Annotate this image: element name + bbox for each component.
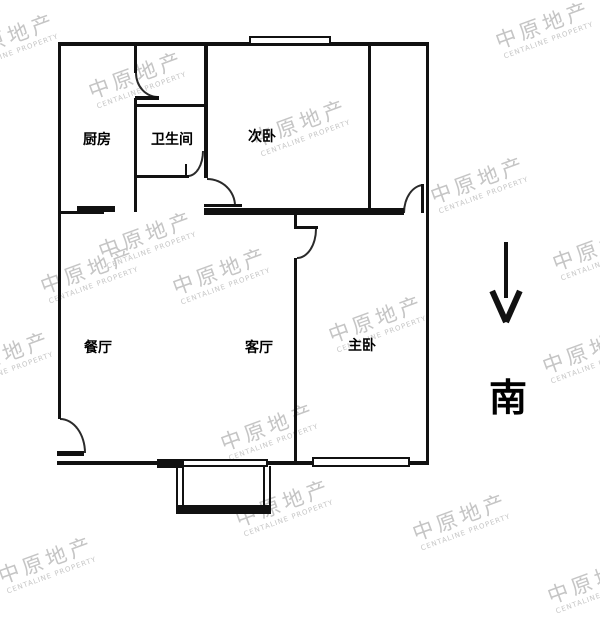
balcony-wall-right-inner	[263, 466, 265, 508]
watermark: 中原地产CENTALINE PROPERTY	[465, 0, 600, 71]
watermark-subtext: CENTALINE PROPERTY	[520, 335, 600, 396]
master-bedroom-door-leaf	[296, 226, 318, 229]
watermark-text: 中原地产	[10, 234, 168, 308]
watermark: 中原地产CENTALINE PROPERTY	[298, 283, 459, 366]
room-label-secondary-bedroom: 次卧	[248, 126, 276, 146]
bathroom-door-arc	[188, 151, 204, 177]
watermark: 中原地产CENTALINE PROPERTY	[222, 87, 383, 170]
watermark-subtext: CENTALINE PROPERTY	[150, 256, 303, 317]
watermark-text: 中原地产	[0, 1, 87, 75]
room-label-kitchen: 厨房	[83, 129, 111, 149]
watermark-subtext: CENTALINE PROPERTY	[390, 502, 543, 563]
wall-living-master	[294, 258, 297, 463]
watermark-text: 中原地产	[142, 235, 300, 309]
balcony-block	[157, 459, 183, 468]
wall-top	[58, 42, 429, 46]
balcony-wall-left-inner	[182, 466, 184, 508]
entry-door-arc	[60, 418, 86, 453]
kitchen-door-leaf	[135, 96, 159, 100]
wall-bathroom-bottom	[134, 175, 189, 178]
master-bedroom-door-arc	[297, 229, 317, 259]
floor-plan-page: { "watermark": { "text": "中原地产", "subtex…	[0, 0, 600, 600]
watermark-subtext: CENTALINE PROPERTY	[0, 340, 85, 401]
window-master-bedroom	[312, 457, 410, 467]
south-arrow-shaft	[504, 242, 508, 298]
secondary-bedroom-door-leaf	[204, 204, 242, 207]
watermark-subtext: CENTALINE PROPERTY	[0, 545, 128, 606]
watermark: 中原地产CENTALINE PROPERTY	[382, 481, 543, 564]
watermark-subtext: CENTALINE PROPERTY	[213, 488, 366, 549]
strip-room-door-leaf	[421, 184, 424, 213]
wall-kitchen-hatch	[77, 206, 115, 212]
room-label-master-bedroom: 主卧	[348, 335, 376, 355]
watermark: 中原地产CENTALINE PROPERTY	[0, 319, 85, 402]
watermark-text: 中原地产	[222, 87, 380, 161]
watermark-text: 中原地产	[517, 544, 600, 618]
watermark-subtext: CENTALINE PROPERTY	[473, 10, 600, 71]
wall-kitchen-right-upper	[134, 42, 137, 73]
wall-left	[58, 42, 61, 419]
watermark-text: 中原地产	[0, 319, 82, 393]
secondary-bedroom-door-arc	[207, 178, 236, 206]
wall-right	[426, 42, 429, 465]
watermark-subtext: CENTALINE PROPERTY	[530, 232, 600, 293]
balcony-sliding-door	[182, 459, 268, 467]
watermark: 中原地产CENTALINE PROPERTY	[522, 211, 600, 294]
south-label: 南	[489, 367, 527, 422]
watermark-subtext: CENTALINE PROPERTY	[408, 165, 561, 226]
watermark-subtext: CENTALINE PROPERTY	[0, 22, 90, 83]
room-label-living-room: 客厅	[245, 337, 273, 357]
balcony-wall-bottom	[176, 505, 271, 514]
wall-strip-left	[368, 42, 371, 215]
watermark-text: 中原地产	[0, 524, 125, 598]
watermark: 中原地产CENTALINE PROPERTY	[0, 524, 128, 607]
watermark-subtext: CENTALINE PROPERTY	[306, 304, 459, 365]
wall-bathroom-top	[134, 104, 208, 107]
watermark: 中原地产CENTALINE PROPERTY	[10, 234, 171, 317]
watermark-subtext: CENTALINE PROPERTY	[525, 565, 600, 626]
watermark-subtext: CENTALINE PROPERTY	[18, 255, 171, 316]
watermark-subtext: CENTALINE PROPERTY	[76, 220, 229, 281]
watermark-text: 中原地产	[190, 391, 348, 465]
kitchen-door-arc	[135, 73, 158, 98]
watermark: 中原地产CENTALINE PROPERTY	[142, 235, 303, 318]
watermark-text: 中原地产	[205, 467, 363, 541]
wall-bedrooms-south-thick	[204, 208, 404, 215]
wall-kitchen-right-lower	[134, 98, 137, 212]
watermark-text: 中原地产	[382, 481, 540, 555]
window-secondary-bedroom	[249, 36, 331, 45]
bathroom-door-leaf	[185, 164, 187, 176]
floor-plan: 中原地产CENTALINE PROPERTY 中原地产CENTALINE PRO…	[0, 0, 600, 600]
watermark-text: 中原地产	[465, 0, 600, 63]
room-label-dining-room: 餐厅	[84, 337, 112, 357]
watermark-text: 中原地产	[522, 211, 600, 285]
entry-door-leaf	[57, 451, 84, 456]
wall-bathroom-bedroom2	[204, 42, 208, 178]
room-label-bathroom: 卫生间	[151, 129, 193, 149]
watermark-text: 中原地产	[298, 283, 456, 357]
watermark: 中原地产CENTALINE PROPERTY	[517, 544, 600, 626]
